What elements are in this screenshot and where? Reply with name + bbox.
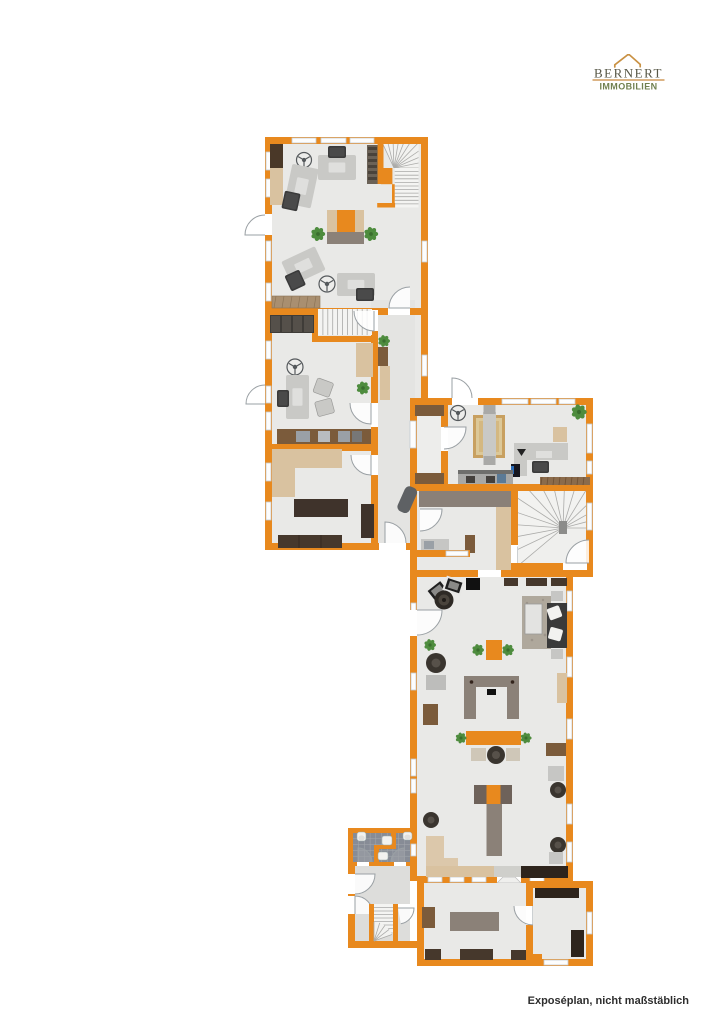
svg-text:BERNERT: BERNERT — [594, 66, 663, 81]
svg-text:Exposéplan, nicht maßstäblich: Exposéplan, nicht maßstäblich — [528, 995, 690, 1007]
svg-text:IMMOBILIEN: IMMOBILIEN — [600, 82, 658, 92]
